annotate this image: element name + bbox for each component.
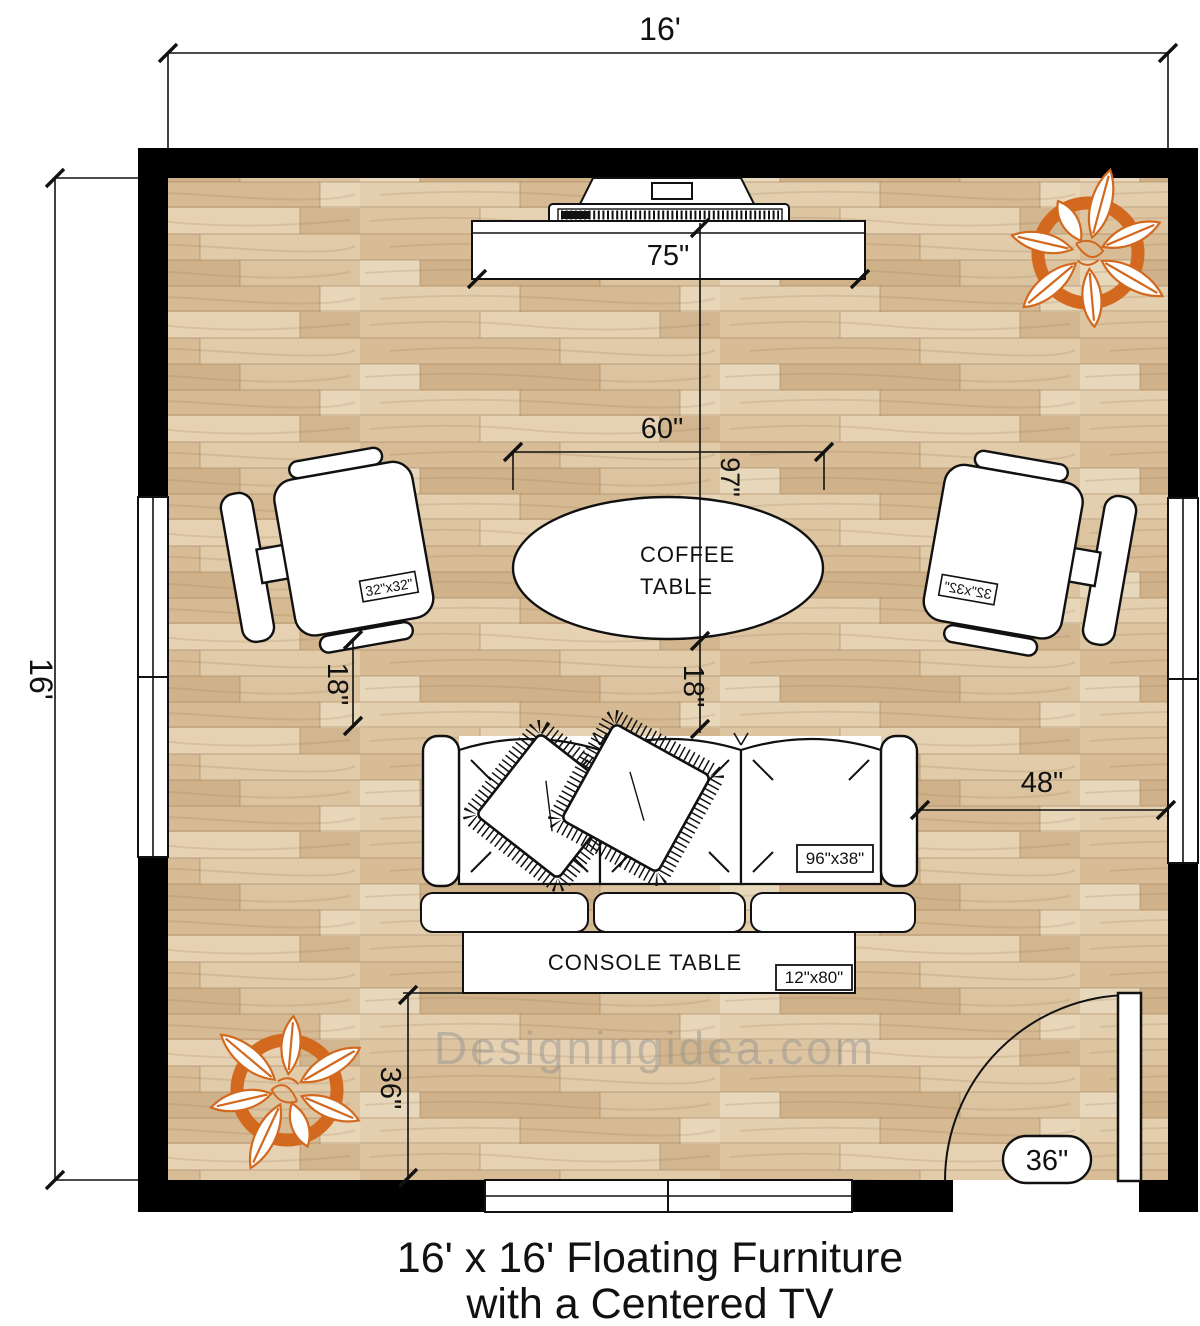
dim-console-to-wall-label: 36" xyxy=(374,1067,406,1110)
coffee-table: COFFEE TABLE xyxy=(513,497,823,639)
floor-plan-page: Designingidea.com COFFEE TABLE 32"x32" 3… xyxy=(0,0,1200,1326)
console-table-size: 12"x80" xyxy=(785,968,843,987)
sofa: 96"x38" xyxy=(421,714,917,932)
dim-door-width-label: 36" xyxy=(1026,1145,1069,1177)
watermark: Designingidea.com xyxy=(434,1022,876,1074)
dim-chair-to-sofa-label: 18" xyxy=(321,663,353,706)
dim-room-height: 16' xyxy=(23,169,138,1189)
sofa-back-cushion xyxy=(751,893,915,932)
door-width-pill: 36" xyxy=(1003,1136,1091,1183)
door-opening xyxy=(953,1180,1139,1213)
sofa-back-cushion xyxy=(421,893,588,932)
floor-plan-drawing: Designingidea.com COFFEE TABLE 32"x32" 3… xyxy=(0,0,1200,1326)
tv-stand-mount xyxy=(652,183,692,199)
dim-coffee-width-label: 60" xyxy=(641,413,684,445)
coffee-table-label-2: TABLE xyxy=(640,574,713,599)
window-right xyxy=(1168,498,1198,863)
dim-room-height-label: 16' xyxy=(23,658,59,700)
plan-title-line2: with a Centered TV xyxy=(465,1280,834,1326)
sofa-size: 96"x38" xyxy=(806,849,864,868)
dim-room-width-label: 16' xyxy=(639,11,681,47)
dim-sofa-to-wall-label: 48" xyxy=(1021,767,1064,799)
dim-room-width: 16' xyxy=(159,11,1177,148)
coffee-table-label-1: COFFEE xyxy=(640,542,735,567)
dim-coffee-to-sofa-label: 18" xyxy=(677,665,709,708)
console-table-label: CONSOLE TABLE xyxy=(548,950,742,975)
sofa-back-cushion xyxy=(594,893,745,932)
console-table: CONSOLE TABLE 12"x80" xyxy=(463,932,855,993)
plan-title-line1: 16' x 16' Floating Furniture xyxy=(397,1234,903,1282)
dim-tv-width-label: 75" xyxy=(647,240,690,272)
window-left xyxy=(138,497,168,857)
door-leaf xyxy=(1118,993,1141,1181)
dim-tv-to-sofa-label: 97" xyxy=(715,457,745,497)
window-bottom xyxy=(485,1180,852,1212)
